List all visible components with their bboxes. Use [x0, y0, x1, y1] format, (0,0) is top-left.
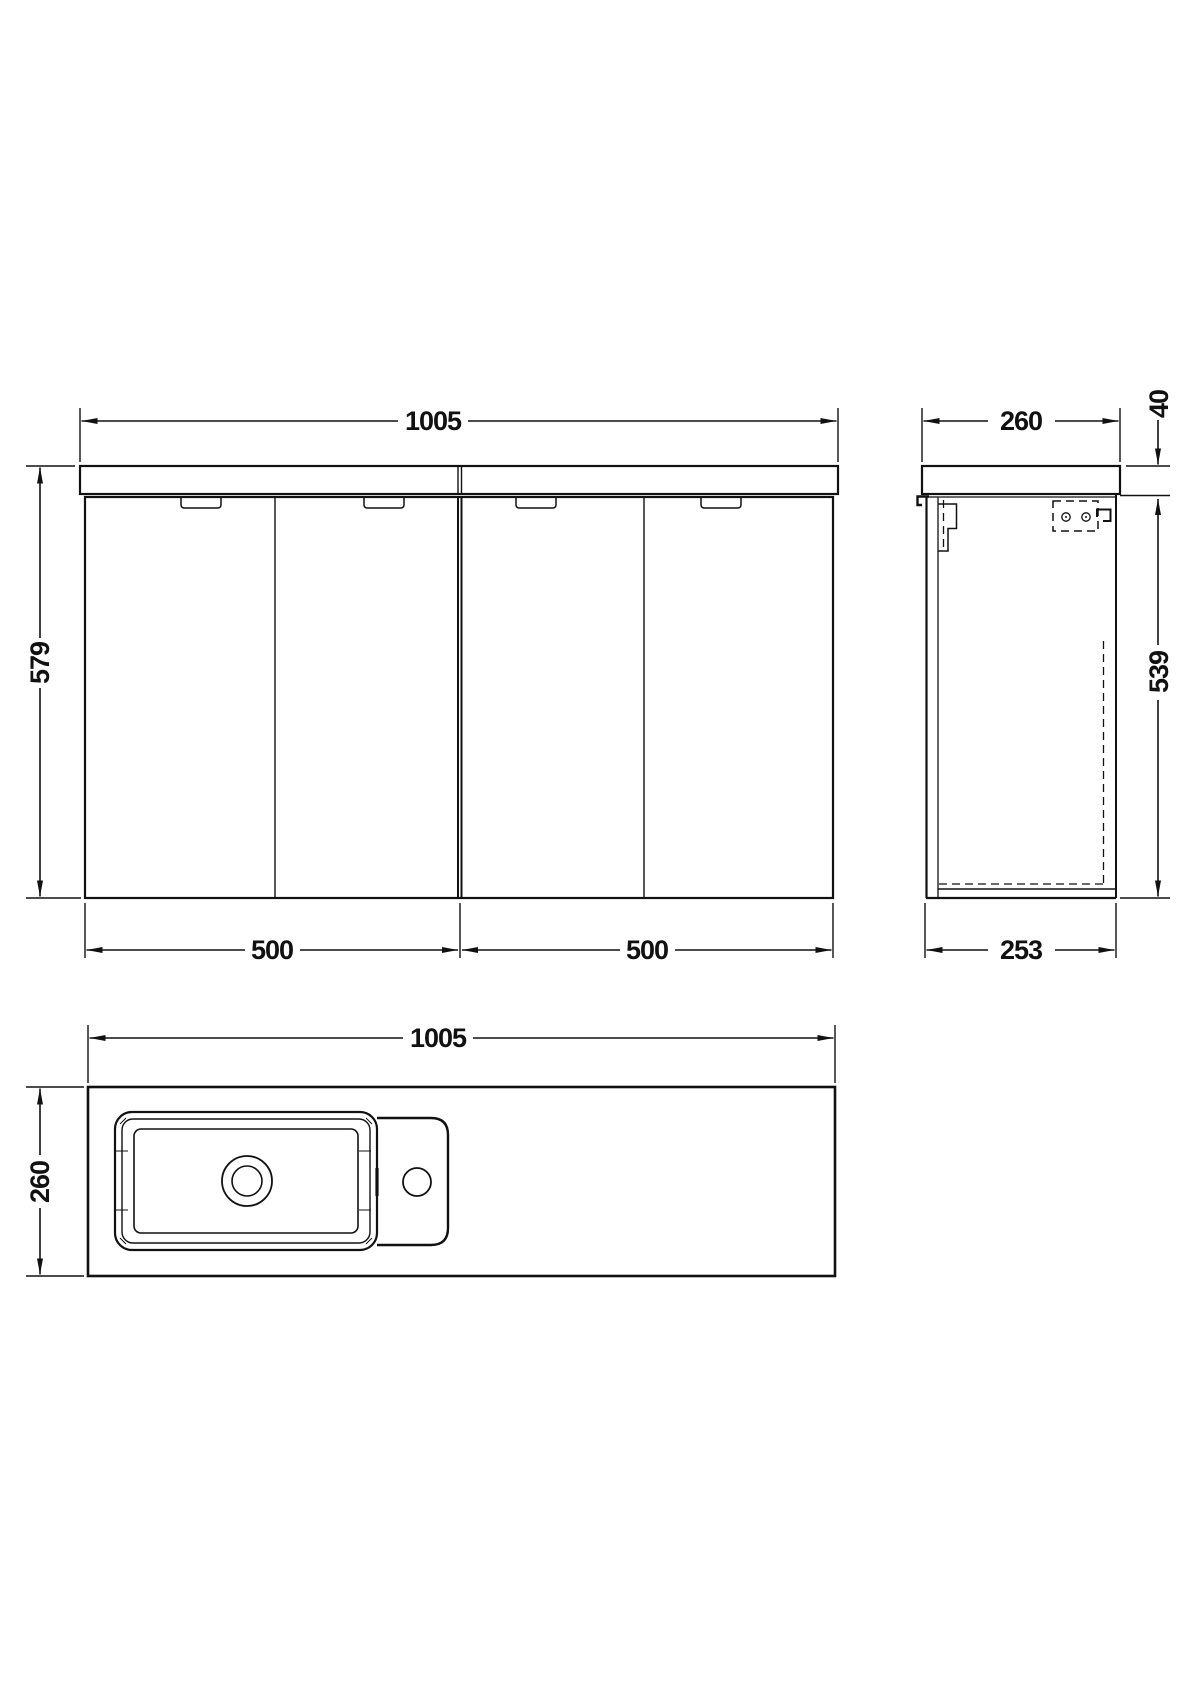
basin-bowl: [134, 1129, 358, 1233]
dim-plan-width: 1005: [88, 1023, 835, 1083]
technical-drawing-page: 1005 579 500 500: [0, 0, 1200, 1698]
wall-bracket-hidden: [1053, 501, 1098, 531]
dim-label-counter-thickness: 40: [1144, 390, 1174, 418]
side-elevation-view: [918, 466, 1121, 898]
front-worktop: [80, 466, 838, 494]
basin-tap-deck: [377, 1118, 448, 1245]
dim-cabinet-height: 539: [1120, 499, 1174, 898]
front-elevation-view: [80, 466, 838, 898]
plan-worktop-outline: [88, 1087, 835, 1276]
dim-front-height: 579: [25, 466, 81, 898]
plan-view: [88, 1087, 835, 1276]
bracket-screw-center: [1085, 516, 1087, 518]
dim-label-front-height: 579: [25, 641, 55, 684]
basin-inner-rim: [122, 1119, 370, 1243]
dim-label-front-unit-right: 500: [626, 935, 668, 965]
dim-label-front-unit-left: 500: [251, 935, 293, 965]
dim-label-plan-depth: 260: [25, 1161, 55, 1203]
door-handle-notch: [516, 497, 556, 508]
bracket-screw-center: [1065, 516, 1067, 518]
side-worktop: [922, 466, 1120, 494]
hinge-detail: [938, 504, 957, 551]
dim-label-plan-width: 1005: [410, 1023, 467, 1053]
dim-side-depth: 260: [922, 406, 1120, 462]
door-handle-notch: [364, 497, 404, 508]
dim-label-cabinet-height: 539: [1144, 650, 1174, 693]
dim-label-cabinet-depth: 253: [1000, 935, 1043, 965]
door-handle-notch: [701, 497, 741, 508]
hanging-rail-hook: [1097, 510, 1111, 522]
door-handle-notch: [181, 497, 221, 508]
dim-label-side-depth: 260: [1000, 406, 1042, 436]
dim-plan-depth: 260: [25, 1087, 84, 1276]
dim-counter-thickness: 40: [1120, 390, 1174, 496]
drain-inner-ring: [232, 1166, 262, 1196]
tap-hole: [403, 1168, 431, 1196]
drain-outer-ring: [222, 1156, 272, 1206]
dim-cabinet-depth: 253: [925, 903, 1116, 965]
dim-front-width: 1005: [80, 406, 838, 462]
vanity-unit-technical-drawing: 1005 579 500 500: [0, 0, 1200, 1698]
dim-label-front-width: 1005: [405, 406, 462, 436]
basin-outer-rim: [115, 1112, 377, 1250]
dim-front-units: 500 500: [85, 903, 833, 965]
